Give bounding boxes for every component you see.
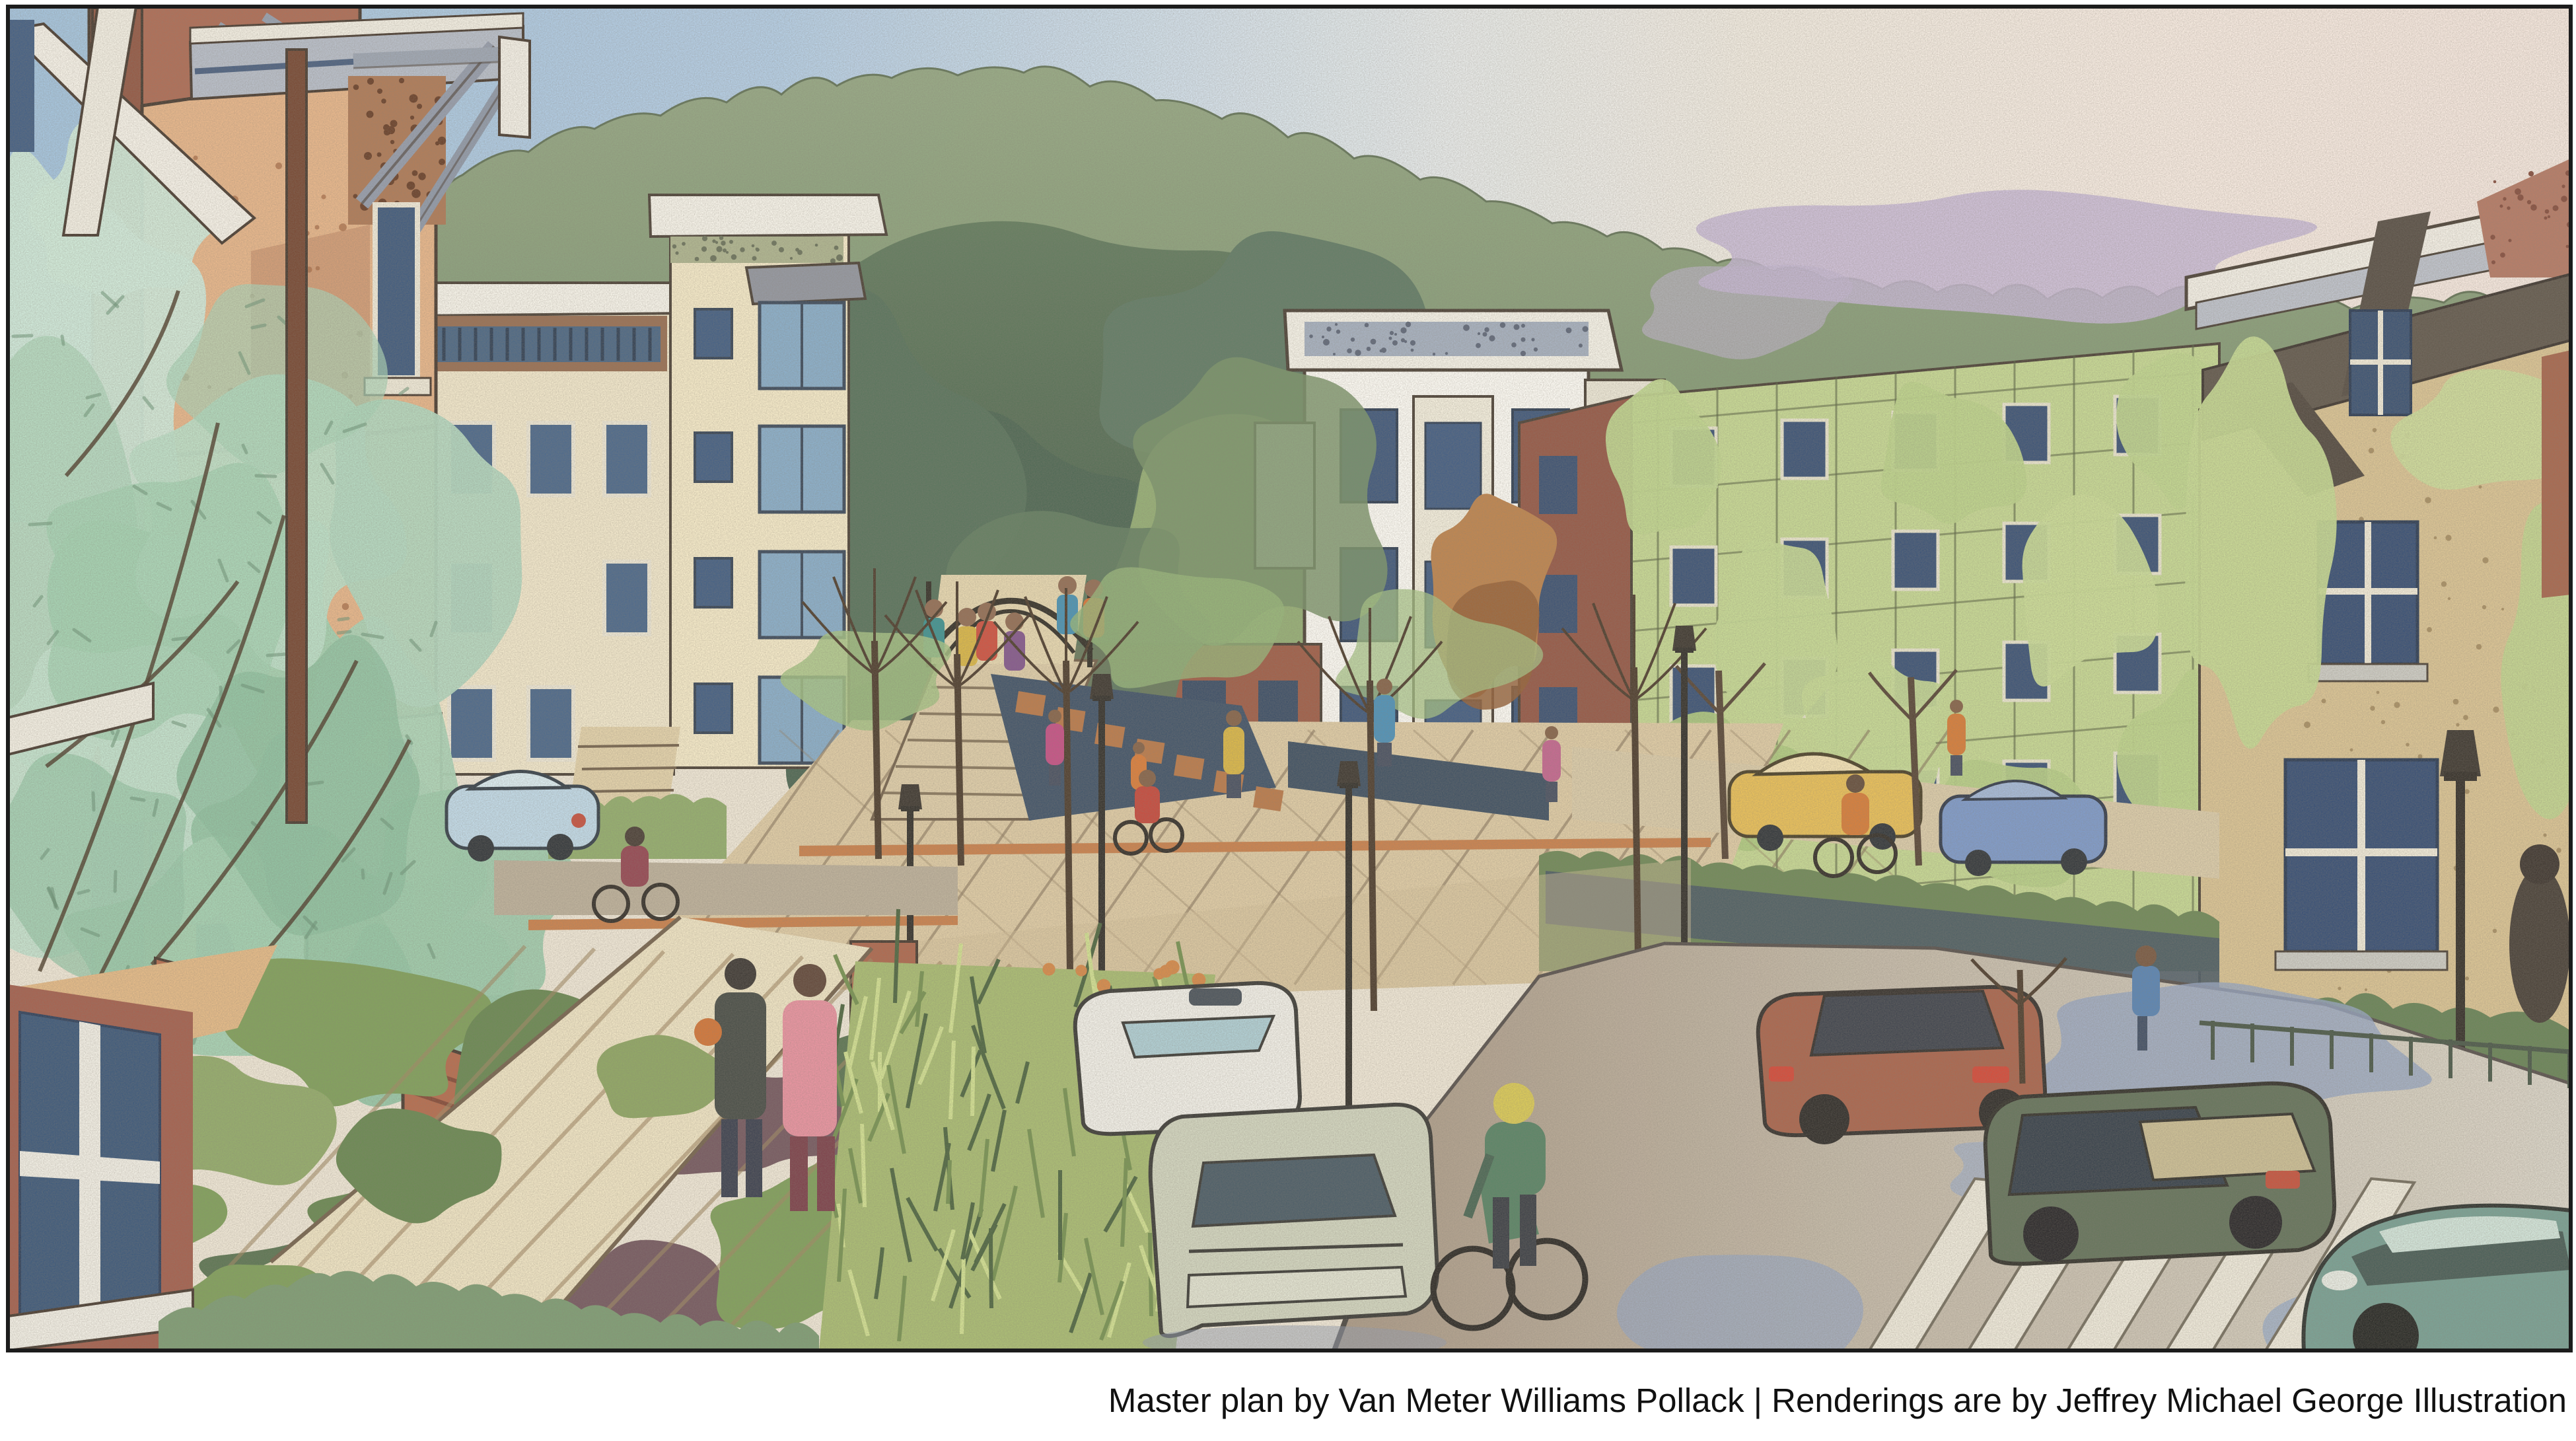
svg-text:Master plan by Van Meter Willi: Master plan by Van Meter Williams Pollac… [1108, 1382, 2567, 1419]
